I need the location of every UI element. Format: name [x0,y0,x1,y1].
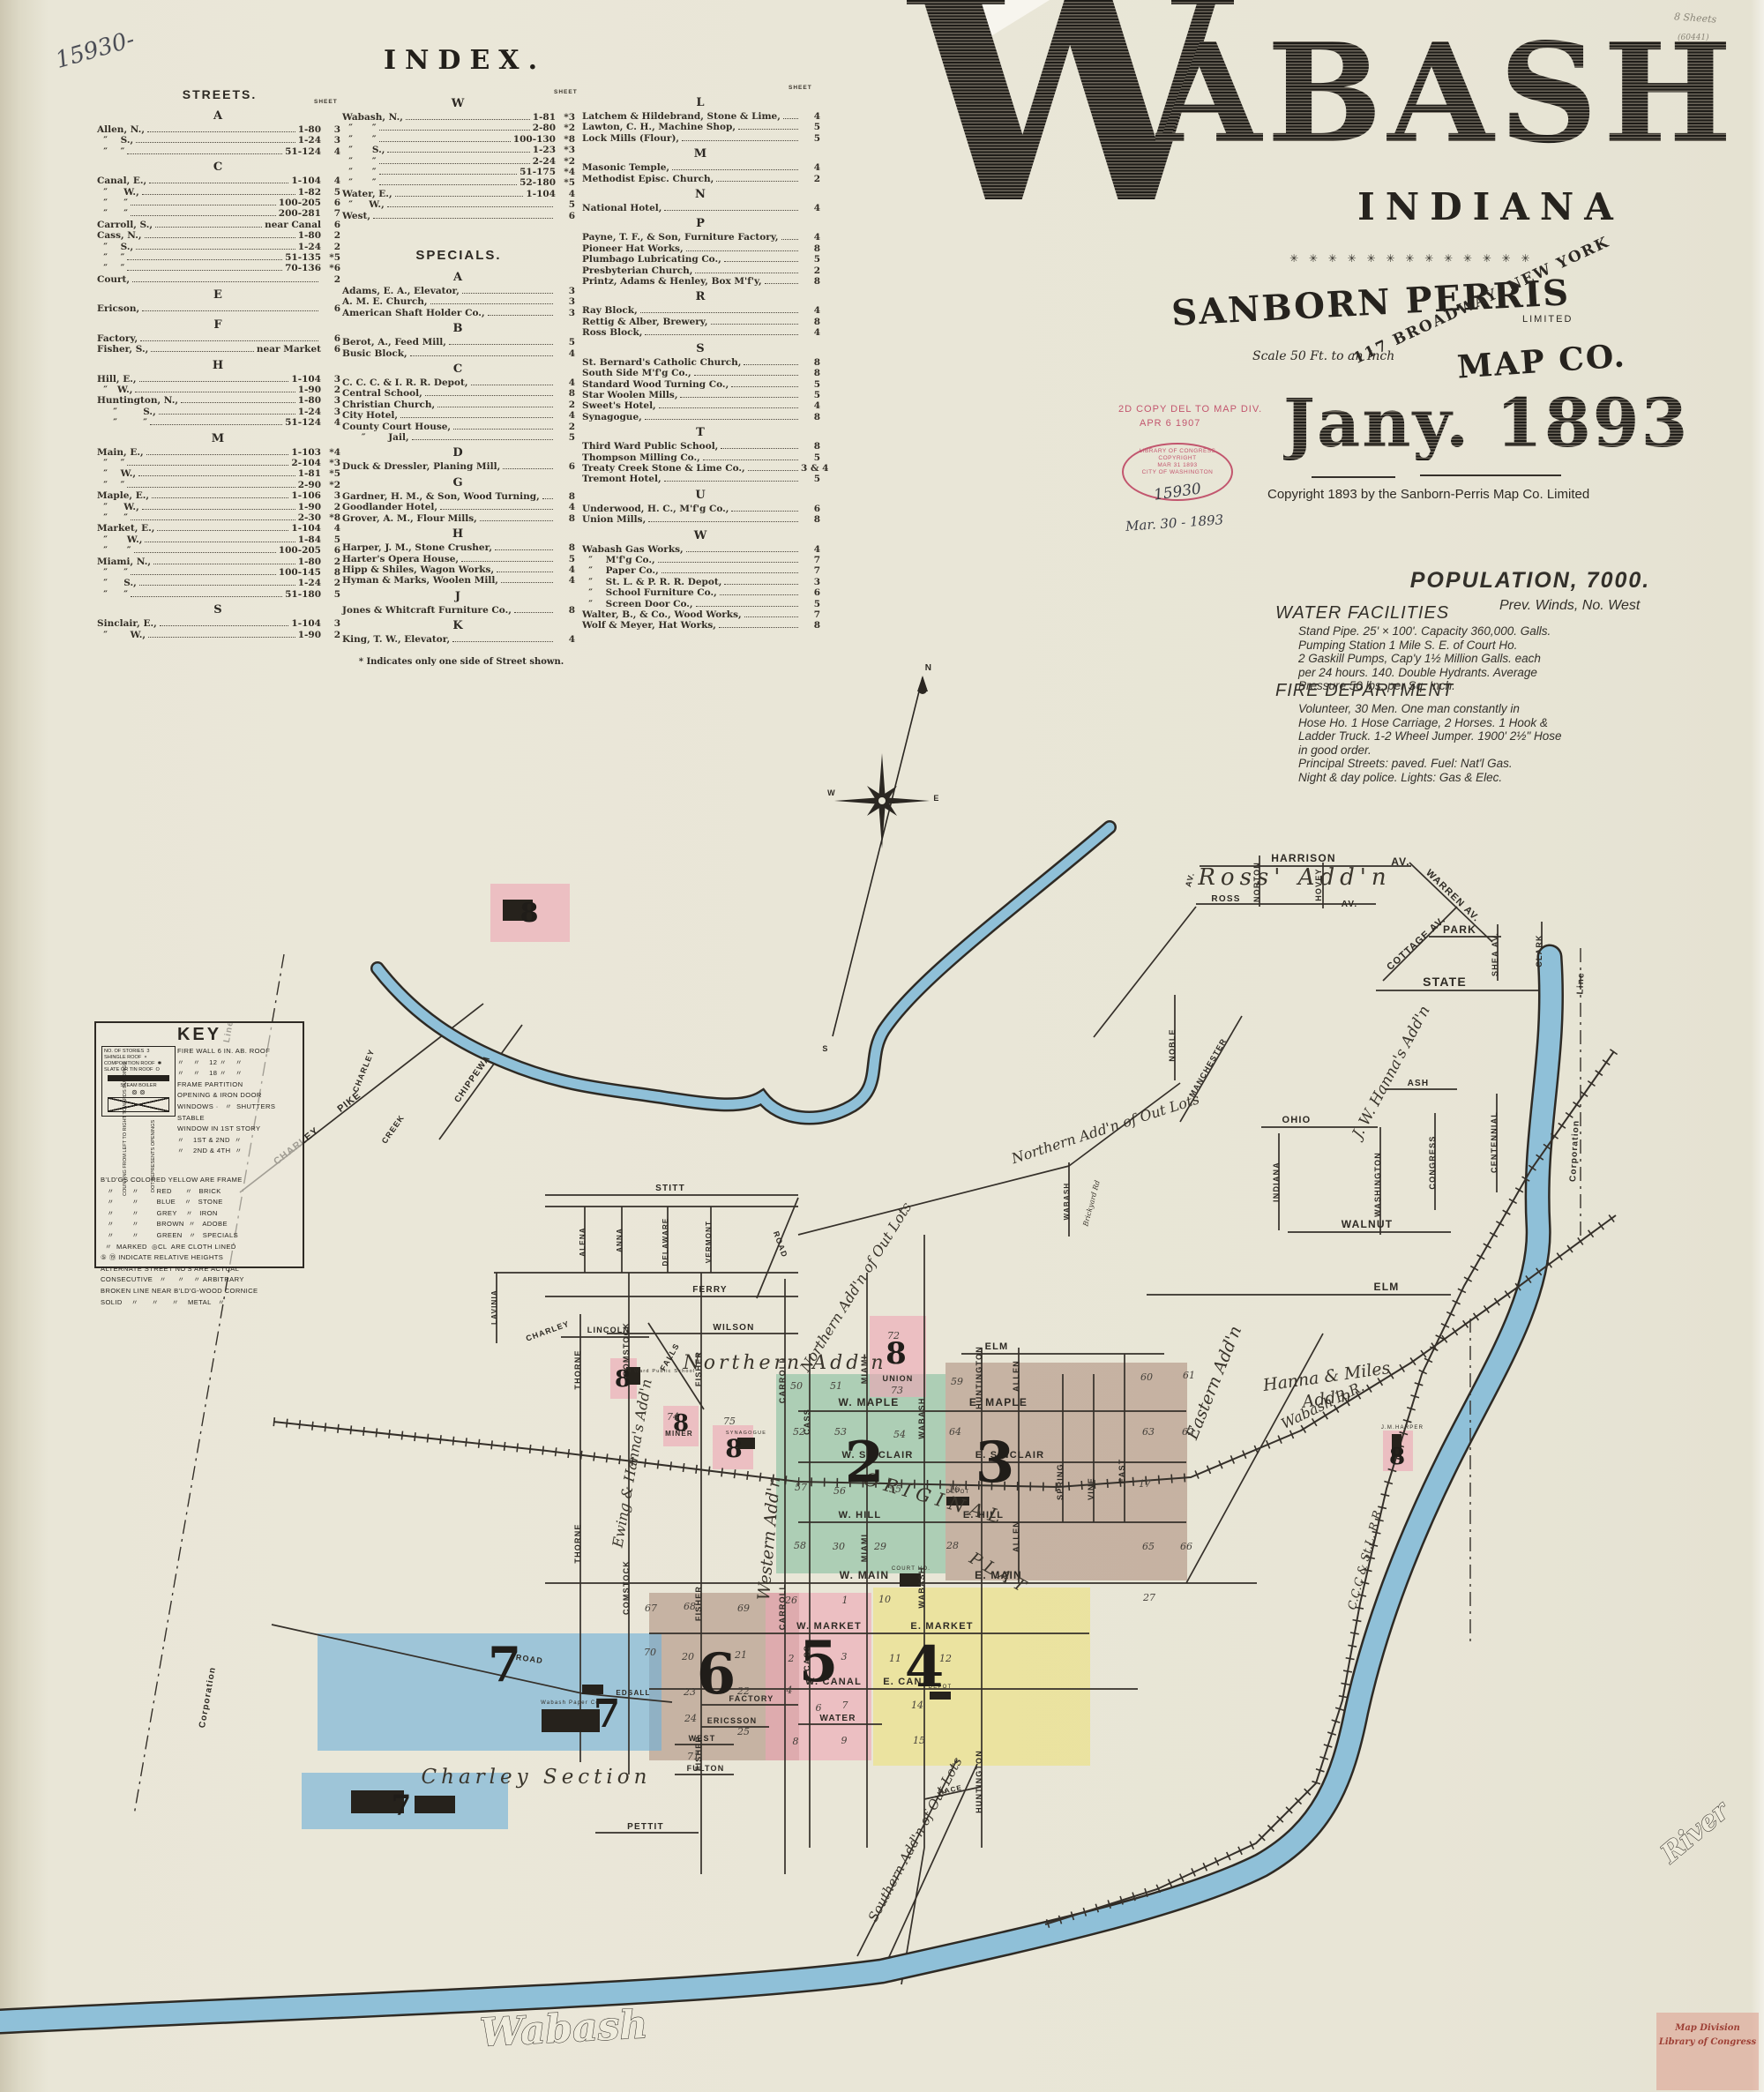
dotted-leader [461,561,553,562]
index-entry-name: St. Bernard's Catholic Church, [582,357,741,368]
key-title: KEY [96,1025,303,1044]
area-label: J. W. Hanna's Add'n [1348,1003,1434,1144]
index-section-letter: A [97,108,340,124]
copyright-line: Copyright 1893 by the Sanborn-Perris Map… [1267,487,1589,502]
block-number: 58 [794,1540,806,1551]
dotted-leader [131,574,276,575]
street-label: VINE [1087,1477,1095,1500]
index-entry-sheet: 2 [321,385,340,395]
sheet-district-numeral: 8 [520,898,539,929]
index-entry-name: ″ Paper Co., [582,565,659,576]
dotted-leader [145,542,295,542]
index-entry-sheet: 3 [556,286,575,296]
index-entry-range: 1-80 [298,557,321,567]
index-entry-range: 2-24 [533,156,556,167]
dotted-leader [731,511,798,512]
sheet-district-numeral: 8 [1389,1444,1405,1470]
index-entry-sheet: 8 [556,605,575,616]
index-entry-name: King, T. W., Elevator, [342,634,450,645]
index-entry-range: 1-103 [291,447,321,458]
index-entry-name: ″ ″ [342,156,377,167]
street-label: HARRISON [1271,852,1336,864]
index-entry: ″ S.,1-242 [97,578,340,588]
index-entry-name: ″ S., [97,407,156,417]
index-entry-name: ″ ″ [97,263,124,273]
area-label: Brickyard Rd [1081,1179,1102,1228]
street-label: ELM [985,1341,1009,1352]
dotted-leader [159,414,295,415]
block-number: 50 [790,1380,803,1392]
text-line: BROKEN LINE NEAR B'LD'G-WOOD CORNICE [101,1286,300,1297]
index-entry-sheet: *5 [321,252,340,263]
streets-header: STREETS. [154,87,285,101]
sheet-district-numeral: 2 [845,1430,885,1496]
street-label: ALENA [579,1227,587,1257]
index-entry-name: ″ ″ [97,198,128,208]
block-number: 25 [736,1726,750,1737]
index-entry: Court,2 [97,274,340,285]
text-line: WINDOW IN 1ST STORY [177,1124,301,1135]
index-entry-sheet: 3 [321,618,340,629]
index-entry-name: ″ ″ [97,512,128,523]
index-entry-name: Union Mills, [582,514,646,525]
dotted-leader [658,562,798,563]
street-label: WEST [689,1734,716,1743]
dotted-leader [744,616,798,617]
dotted-leader [453,429,553,430]
index-entry: ″ ″52-180*5 [342,177,575,188]
index-entry-sheet: *8 [556,134,575,145]
block-number: 70 [644,1647,656,1658]
sheet-district-numeral: 8 [725,1434,742,1463]
block-number: 16 [948,1483,960,1495]
index-entry-name: Jones & Whitcraft Furniture Co., [342,605,512,616]
index-section-letter: W [342,95,575,112]
index-entry: Sinclair, E.,1-1043 [97,618,340,629]
index-entry: ″ S.,1-243 [97,135,340,146]
dotted-leader [181,402,295,403]
dotted-leader [682,140,798,141]
index-entry: ″ S.,1-242 [97,242,340,252]
street-label: E. MAPLE [969,1396,1028,1408]
block-number: 10 [878,1594,891,1605]
index-entry-sheet: 8 [801,620,820,631]
index-entry-sheet: 6 [321,198,340,208]
index-entry-sheet: 8 [801,368,820,378]
street-label: W [827,788,836,797]
compass-fleur-icon [917,676,928,691]
street-label: ALLEN [1012,1520,1020,1552]
key-steam-boiler-bar [108,1075,169,1081]
index-entry-sheet: 4 [321,523,340,534]
street-label: SHEA AV. [1491,932,1499,976]
index-entry: South Side M'f'g Co.,8 [582,368,820,378]
index-entry: ″ W.,1-902 [97,630,340,640]
index-entry-name: ″ ″ [97,252,124,263]
index-entry-name: Hipp & Shiles, Wagon Works, [342,564,494,575]
index-entry-sheet: 4 [321,417,340,428]
block-number: 12 [939,1653,952,1664]
dotted-leader [430,303,553,304]
index-entry: Market, E.,1-1044 [97,523,340,534]
index-entry-sheet: 2 [556,400,575,410]
index-entry-name: ″ S., [342,145,385,155]
fire-department-text: Volunteer, 30 Men. One man constantly in… [1298,702,1562,784]
index-entry: Busic Block,4 [342,348,575,359]
index-section-letter: J [342,588,575,605]
dotted-leader [131,519,295,520]
street-label: EDSALL [616,1689,650,1697]
index-entry-sheet: 4 [556,410,575,421]
dotted-leader [721,448,798,449]
index-section-letter: M [582,146,820,162]
index-entry-range: 1-104 [291,618,321,629]
index-entry-sheet: 8 [801,243,820,254]
index-entry-sheet: 2 [556,422,575,432]
block-number: 9 [841,1735,848,1746]
index-entry: Methodist Episc. Church,2 [582,174,820,184]
index-entry-name: South Side M'f'g Co., [582,368,691,378]
index-entry: Star Woolen Mills,5 [582,390,820,400]
title-wabash: ABASH [1155,25,1738,161]
block-number: 3 [841,1651,848,1662]
index-entry-sheet: 4 [801,305,820,316]
block-number: 52 [793,1426,805,1438]
map-div-stamp-line2: APR 6 1907 [1140,418,1200,429]
dotted-leader [146,454,289,455]
index-entry-range: 1-104 [526,189,556,199]
index-entry: Hipp & Shiles, Wagon Works,4 [342,564,575,575]
index-entry-name: Court, [97,274,130,285]
street-label: INDIANA [1272,1162,1281,1202]
index-entry-sheet: 3 & 4 [801,463,820,474]
index-entry: ″ S.,1-243 [97,407,340,417]
sheet-district-numeral: 8 [886,1336,907,1371]
index-entry-sheet: 5 [801,474,820,484]
index-entry: American Shaft Holder Co.,3 [342,308,575,318]
index-section-letter: F [97,317,340,333]
dotted-leader [449,344,553,345]
index-entry: ″ S.,1-23*3 [342,145,575,155]
index-entry: Payne, T. F., & Son, Furniture Factory,4 [582,232,820,243]
index-entry-sheet: 6 [801,504,820,514]
dotted-leader [152,497,288,498]
block-number: 63 [1142,1426,1155,1438]
index-entry-sheet: 4 [556,348,575,359]
street-label: WASHINGTON [1373,1152,1382,1217]
index-entry: ″ Screen Door Co.,5 [582,599,820,609]
index-entry-name: Ericson, [97,303,139,314]
index-entry: Allen, N.,1-803 [97,124,340,135]
block-number: 8 [793,1736,799,1747]
street-label: CHIPPEWA [452,1054,492,1105]
map-div-stamp-line1: 2D COPY DEL TO MAP DIV. [1118,404,1262,415]
dotted-leader [514,612,553,613]
dotted-leader [703,459,798,460]
index-section-letter: S [97,601,340,618]
dotted-leader [379,163,530,164]
street-label: ELM [1374,1281,1400,1293]
index-entry: ″ ″2-30*8 [97,512,340,523]
text-line: 〃 1ST & 2ND 〃 [177,1135,301,1147]
index-section-letter: D [342,445,575,461]
index-entry-sheet: 6 [556,211,575,221]
index-entry: Wolf & Meyer, Hat Works,8 [582,620,820,631]
key-symbol-rows: FIRE WALL 6 IN. AB. ROOF〃 〃 12 〃 〃〃 〃 18… [177,1046,301,1157]
index-entry-range: 51-124 [285,146,321,157]
index-entry: Sweet's Hotel,4 [582,400,820,411]
index-entry: ″ ″51-1244 [97,417,340,428]
block-number: 64 [949,1426,961,1438]
index-entry-range: 2-30 [298,512,321,523]
index-entry: Canal, E.,1-1044 [97,176,340,186]
date-underline-right [1420,474,1561,476]
index-entry-sheet: *5 [321,468,340,479]
index-entry-sheet: 4 [556,377,575,388]
index-entry: Thompson Milling Co.,5 [582,452,820,463]
index-entry-sheet: 3 [321,395,340,406]
index-entry-name: Factory, [97,333,138,344]
index-entry-sheet: 2 [801,265,820,276]
index-entry: ″ W.,1-902 [97,502,340,512]
dotted-leader [744,364,798,365]
index-entry: Synagogue,8 [582,412,820,422]
dotted-leader [127,259,282,260]
text-line: 〃 〃 GREY 〃 IRON [101,1208,300,1220]
text-line: COMPOSITION ROOF ✱ [104,1061,173,1067]
index-entry-name: Hyman & Marks, Woolen Mill, [342,575,498,586]
index-entry-sheet: 7 [801,609,820,620]
index-entry-sheet: 3 [321,407,340,417]
index-entry-range: 70-136 [285,263,321,273]
street-label: Corporation [1568,1119,1581,1182]
dotted-leader [400,417,553,418]
index-entry-sheet: 4 [321,176,340,186]
dotted-leader [136,249,295,250]
index-entry-range: near Canal [265,220,321,230]
index-entry-range: 2-80 [533,123,556,133]
index-title: INDEX. [342,46,587,76]
index-entry-sheet: 2 [321,557,340,567]
fire-department-title: FIRE DEPARTMENT [1275,681,1454,701]
text-line: SHINGLE ROOF × [104,1055,173,1061]
index-entry-range: 1-84 [298,534,321,545]
dotted-leader [131,205,276,205]
index-entry-name: National Hotel, [582,203,661,213]
index-entry: Plumbago Lubricating Co.,5 [582,254,820,265]
index-section-letter: T [582,424,820,441]
sheet-district-numeral: 4 [905,1634,945,1700]
map-date: Jany. 1893 [1283,386,1689,460]
dotted-leader [440,509,553,510]
index-entry-name: Presbyterian Church, [582,265,692,276]
index-entry-range: 1-104 [291,523,321,534]
index-entry: St. Bernard's Catholic Church,8 [582,357,820,368]
street-label: FERRY [692,1285,728,1295]
dotted-leader [145,237,295,238]
index-entry: Fisher, S.,near Market6 [97,344,340,355]
index-section-letter: W [582,527,820,544]
index-entry-name: Water, E., [342,189,392,199]
street-label: CLARK [1535,934,1543,968]
index-entry-name: Pioneer Hat Works, [582,243,684,254]
street-label: NORTON [1252,862,1261,902]
street-label: MANCHESTER [1187,1036,1228,1098]
index-entry-name: Methodist Episc. Church, [582,174,714,184]
index-entry-sheet: 7 [801,565,820,576]
index-entry-sheet: 8 [321,567,340,578]
index-entry-range: 1-24 [298,242,321,252]
street-label: HUNTINGTON [975,1750,983,1813]
text-line: OPENING & IRON DOOR [177,1090,301,1102]
index-entry-sheet: *2 [556,123,575,133]
index-entry: Factory,6 [97,333,340,344]
index-entry-name: ″ ″ [97,545,131,556]
index-entry-name: ″ ″ [342,177,377,188]
index-entry-name: Main, E., [97,447,144,458]
index-entry-range: near Market [257,344,321,355]
street-label: CONGRESS [1428,1135,1437,1189]
block-number: 72 [887,1330,900,1341]
text-line: 〃 〃 12 〃 〃 [177,1057,301,1069]
index-entry-sheet: 5 [556,432,575,443]
index-entry: City Hotel,4 [342,410,575,421]
index-entry: Masonic Temple,4 [582,162,820,173]
index-entry: Ericson,6 [97,303,340,314]
text-line: 〃 〃 GREEN 〃 SPECIALS [101,1230,300,1242]
index-entry-name: Central School, [342,388,422,399]
index-entry: ″ W.,1-825 [97,187,340,198]
index-entry: Latchem & Hildebrand, Stone & Lime,4 [582,111,820,122]
index-entry-name: ″ S., [97,135,133,146]
index-entry-sheet: 6 [321,303,340,314]
dotted-leader [131,215,276,216]
index-entry-name: West, [342,211,370,221]
index-entry: Pioneer Hat Works,8 [582,243,820,254]
street-line [1094,907,1196,1037]
dotted-leader [452,641,553,642]
dotted-leader [142,509,295,510]
index-entry-sheet: 6 [321,220,340,230]
index-entry-sheet: 8 [801,441,820,452]
index-entry-sheet: 4 [801,544,820,555]
index-entry: ″ School Furniture Co.,6 [582,587,820,598]
index-entry-range: 51-124 [285,417,321,428]
text-line: Night & day police. Lights: Gas & Elec. [1298,771,1562,785]
sheet-district-numeral: 7 [488,1636,521,1692]
index-entry-range: 1-90 [298,502,321,512]
water-facilities-title: WATER FACILITIES [1275,603,1449,624]
compass-needle [833,677,923,1036]
index-entry-sheet: 6 [801,587,820,598]
index-entry: Presbyterian Church,2 [582,265,820,276]
index-entry: Grover, A. M., Flour Mills,8 [342,513,575,524]
index-entry: Miami, N.,1-802 [97,557,340,567]
dotted-leader [480,520,553,521]
text-line: WINDOWS · 〃 SHUTTERS [177,1102,301,1113]
block-number: 51 [830,1380,842,1392]
index-entry-range: 1-82 [298,187,321,198]
index-entry-name: Tremont Hotel, [582,474,661,484]
index-entry-name: Star Woolen Mills, [582,390,677,400]
dotted-leader [127,270,282,271]
index-entry: Wabash, N.,1-81*3 [342,112,575,123]
index-entry: ″ Paper Co.,7 [582,565,820,576]
index-section-letter: U [582,487,820,504]
index-entry: ″ W.,5 [342,199,575,210]
index-entry: Cass, N.,1-802 [97,230,340,241]
index-entry: Goodlander Hotel,4 [342,502,575,512]
index-entry-name: Rettig & Alber, Brewery, [582,317,708,327]
index-entry: Rettig & Alber, Brewery,8 [582,317,820,327]
text-line: STABLE [177,1113,301,1124]
dotted-leader [672,169,798,170]
street-label: NOBLE [1168,1028,1177,1062]
dotted-leader [410,355,553,356]
dotted-leader [131,596,282,597]
street-label: COTTAGE AV. [1385,915,1447,973]
index-section-letter: H [97,357,340,374]
index-entry-range: 1-90 [298,385,321,395]
index-entry-name: Wabash, N., [342,112,403,123]
index-entry-name: ″ ″ [342,167,377,177]
map-key: KEY NO. OF STORIES 3SHINGLE ROOF ×COMPOS… [94,1021,304,1268]
dotted-leader [748,470,798,471]
index-entry-name: Wabash Gas Works, [582,544,684,555]
index-entry: ″ ″51-135*5 [97,252,340,263]
dotted-leader [664,481,798,482]
street-label: DELAWARE [661,1218,669,1266]
block-number: 60 [1140,1371,1153,1383]
dotted-leader [462,293,553,294]
street-label: EAST [1117,1459,1126,1484]
index-entry: ″ W.,1-845 [97,534,340,545]
sheet-district-numeral: 8 [615,1366,631,1393]
index-entry: Third Ward Public School,8 [582,441,820,452]
text-line: SLATE OR TIN ROOF O [104,1067,173,1073]
street-label: S [822,1044,828,1053]
index-entry-name: ″ W., [97,468,136,479]
dotted-leader [716,181,798,182]
index-entry-name: Duck & Dressler, Planing Mill, [342,461,500,472]
dotted-leader [661,572,798,573]
text-line: Volunteer, 30 Men. One man constantly in [1298,702,1562,716]
block-number: 20 [681,1651,694,1662]
index-entry-name: ″ W., [97,630,146,640]
block-number: 26 [784,1595,797,1606]
index-entry: Carroll, S.,near Canal6 [97,220,340,230]
street-label: OHIO [1282,1115,1312,1125]
index-entry: Harter's Opera House,5 [342,554,575,564]
street-line [798,1166,1069,1235]
index-entry-name: City Hotel, [342,410,398,421]
index-entry-name: Thompson Milling Co., [582,452,700,463]
index-entry: Berot, A., Feed Mill,5 [342,337,575,347]
index-entry-name: ″ ″ [97,480,124,490]
dotted-leader [127,487,295,488]
text-line: Pumping Station 1 Mile S. E. of Court Ho… [1298,639,1551,653]
street-label: MIAMI [860,1534,869,1563]
index-entry-name: Goodlander Hotel, [342,502,437,512]
block-number: 29 [873,1541,886,1552]
text-line: Library of Congress [1656,2036,1759,2050]
dotted-leader [153,564,295,564]
dotted-leader [488,315,553,316]
index-entry: Walter, B., & Co., Wood Works,7 [582,609,820,620]
area-label: Ross' Add'n [1197,864,1391,891]
index-entry-range: 100-205 [279,545,321,556]
index-entry-name: Third Ward Public School, [582,441,718,452]
